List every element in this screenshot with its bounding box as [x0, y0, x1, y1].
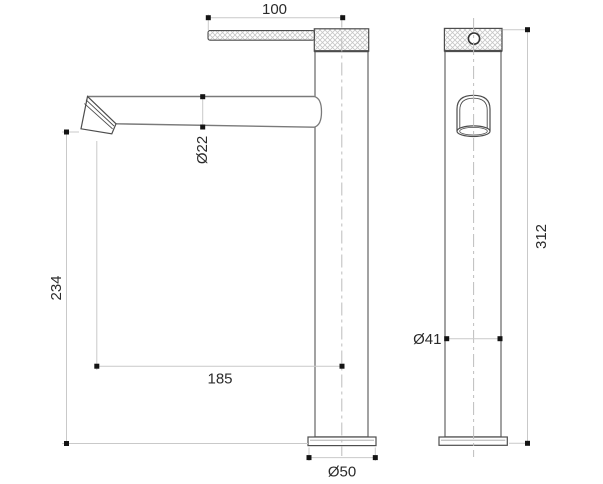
dimension-label-base-diameter: Ø50	[328, 464, 356, 481]
dimension-endpoint-dot	[200, 125, 205, 130]
faucet-technical-drawing: 100 Ø22 234 185	[0, 0, 603, 484]
dimension-endpoint-dot	[64, 130, 69, 135]
dimension-label-handle-length: 100	[262, 1, 287, 18]
dimension-label-total-height: 312	[533, 224, 550, 249]
dimension-endpoint-dot	[94, 364, 99, 369]
dimension-endpoint-dot	[498, 336, 503, 341]
dimension-label-spout-height: 234	[48, 275, 65, 300]
dimension-endpoint-dot	[64, 441, 69, 446]
dimension-total-height: 312	[503, 27, 550, 446]
dimension-endpoint-dot	[525, 441, 530, 446]
side-view	[81, 15, 376, 457]
front-view	[439, 18, 507, 457]
dimension-handle-length: 100	[206, 1, 345, 30]
dimension-endpoint-dot	[444, 336, 449, 341]
dimension-spout-height: 234	[48, 130, 308, 447]
dimension-label-body-diameter: Ø41	[413, 331, 441, 348]
technical-drawing-canvas: 100 Ø22 234 185	[0, 0, 603, 484]
dimension-endpoint-dot	[206, 15, 211, 20]
dimension-endpoint-dot	[200, 94, 205, 99]
dimension-endpoint-dot	[525, 27, 530, 32]
dimension-endpoint-dot	[307, 455, 312, 460]
dimension-spout-reach: 185	[94, 141, 344, 388]
dimension-endpoint-dot	[373, 455, 378, 460]
dimension-endpoint-dot	[340, 15, 345, 20]
dimension-label-spout-reach: 185	[207, 371, 232, 388]
dimension-label-spout-diameter: Ø22	[194, 136, 211, 164]
dimension-endpoint-dot	[340, 364, 345, 369]
spout-tube-fill	[88, 97, 322, 128]
lever-handle	[208, 31, 315, 41]
